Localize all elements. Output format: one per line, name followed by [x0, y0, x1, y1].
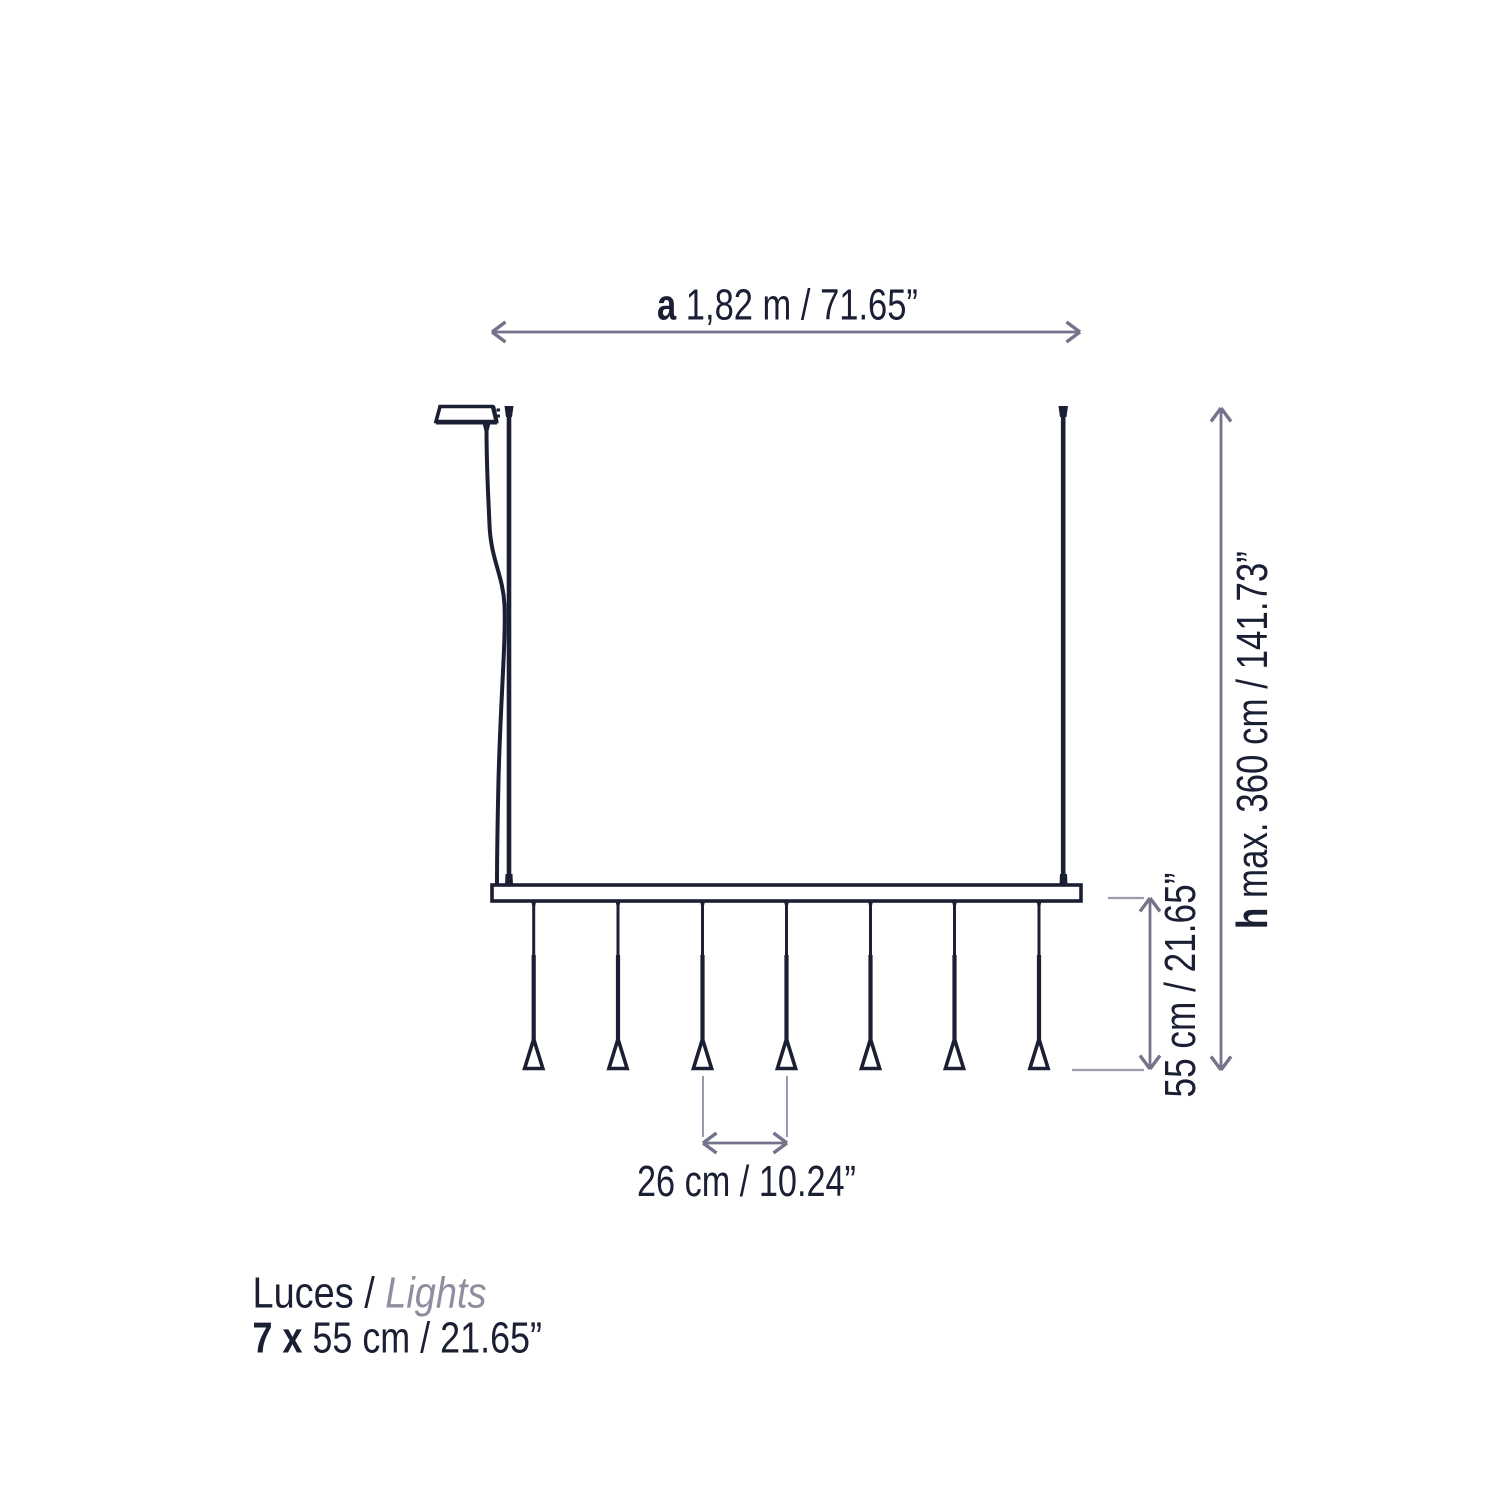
svg-text:26 cm / 10.24”: 26 cm / 10.24” — [637, 1157, 856, 1206]
svg-text:a 1,82 m / 71.65”: a 1,82 m / 71.65” — [657, 281, 918, 330]
svg-text:Luces / Lights: Luces / Lights — [253, 1268, 487, 1317]
svg-text:h max. 360 cm / 141.73”: h max. 360 cm / 141.73” — [1228, 551, 1277, 929]
svg-text:7 x 55 cm / 21.65”: 7 x 55 cm / 21.65” — [253, 1313, 542, 1362]
svg-text:55 cm / 21.65”: 55 cm / 21.65” — [1156, 873, 1205, 1098]
